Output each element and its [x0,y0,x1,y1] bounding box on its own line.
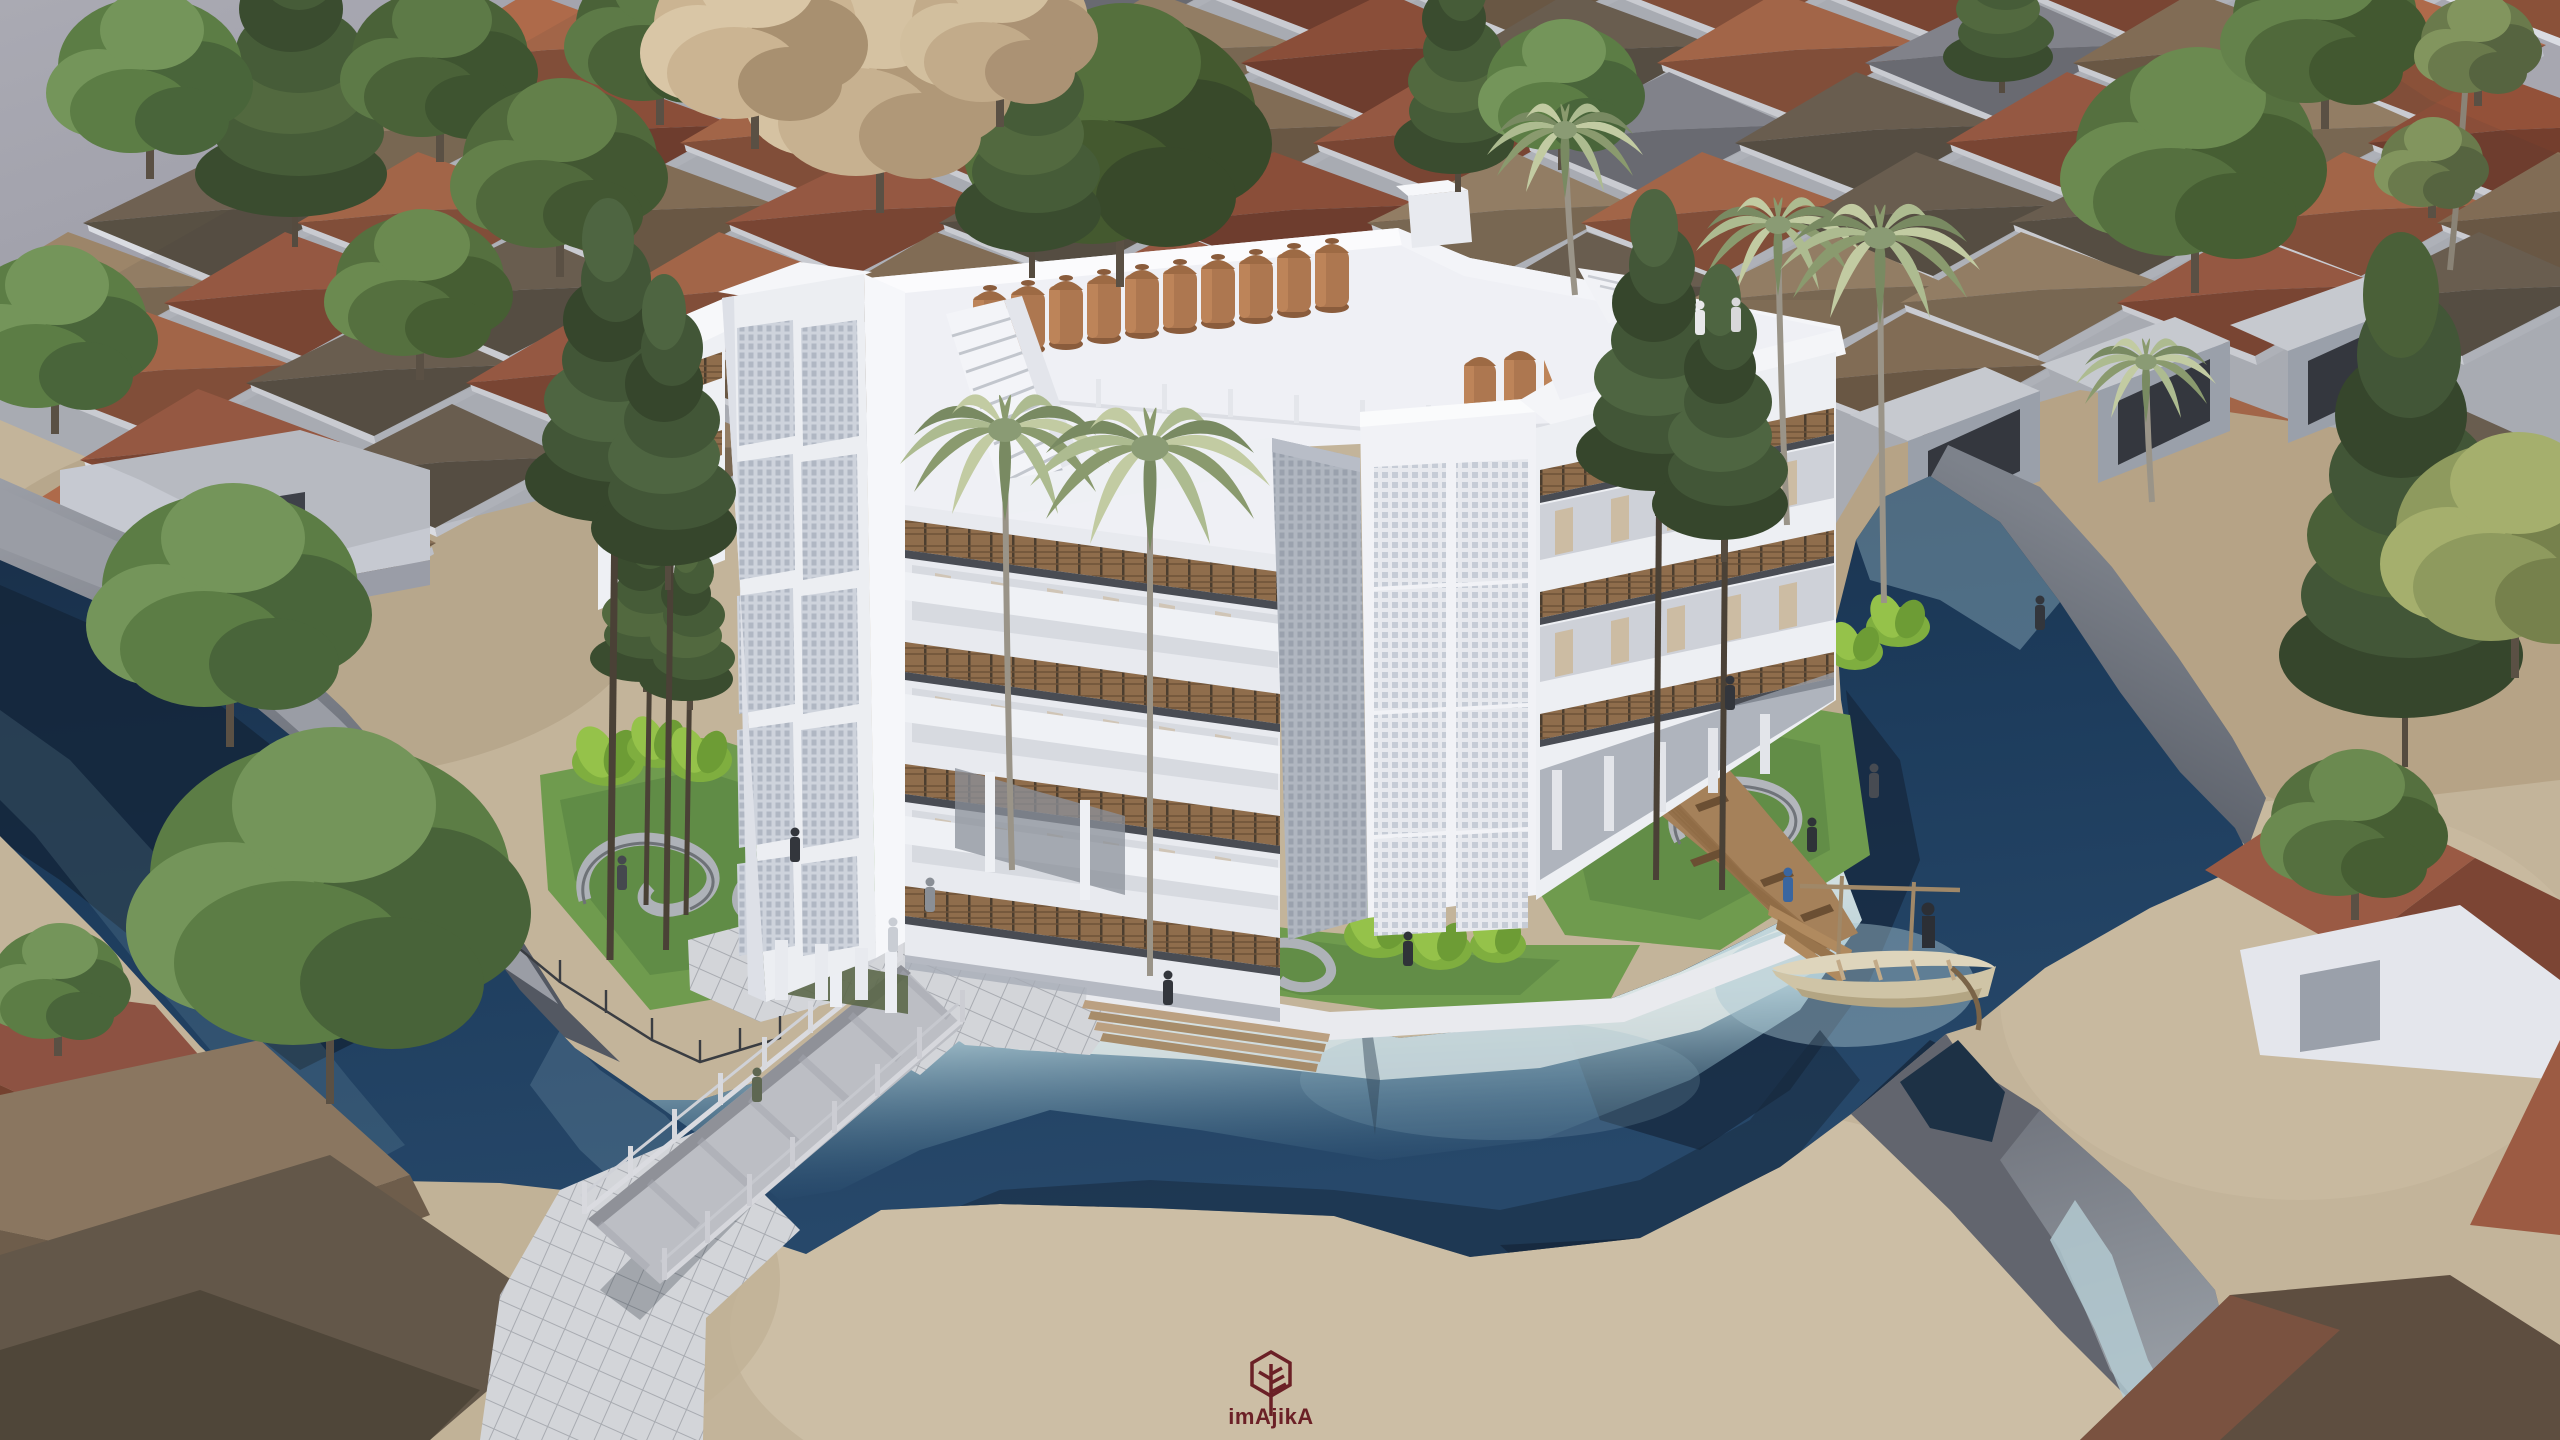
svg-text:imAjikA: imAjikA [1228,1404,1313,1429]
